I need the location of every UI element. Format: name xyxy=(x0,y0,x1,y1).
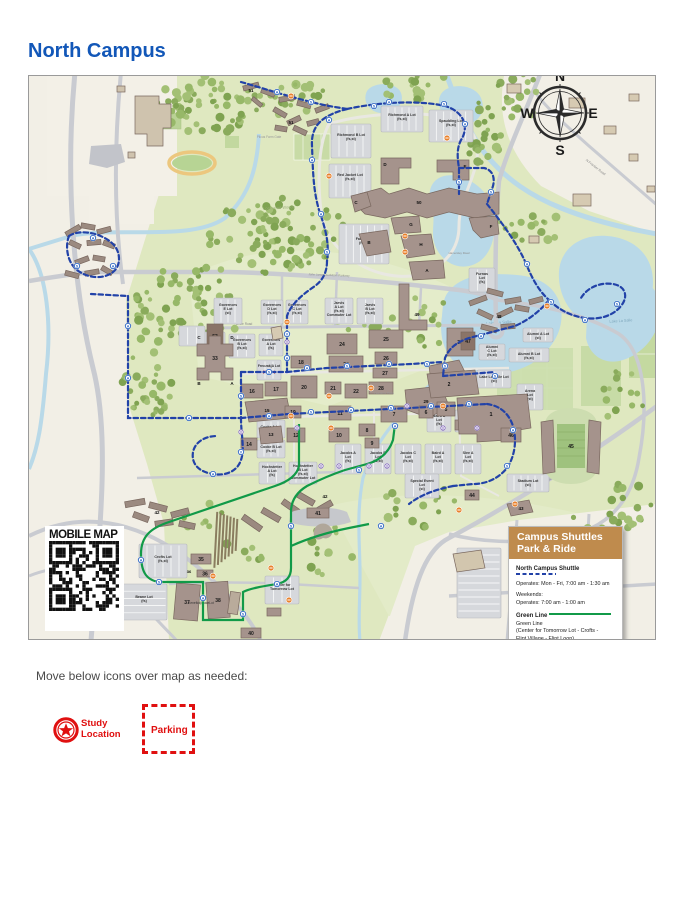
svg-text:42: 42 xyxy=(154,510,160,515)
svg-text:A: A xyxy=(306,367,309,371)
svg-text:A: A xyxy=(480,335,483,339)
svg-text:A: A xyxy=(584,319,587,323)
svg-text:8: 8 xyxy=(366,428,369,434)
svg-text:A: A xyxy=(526,263,529,267)
svg-text:2: 2 xyxy=(448,382,451,388)
svg-text:A: A xyxy=(268,415,271,419)
svg-text:25: 25 xyxy=(383,337,389,343)
svg-text:6: 6 xyxy=(425,410,428,416)
svg-text:A: A xyxy=(92,237,95,241)
svg-text:A: A xyxy=(388,363,391,367)
svg-text:7: 7 xyxy=(393,412,396,418)
svg-text:Hamersley Road: Hamersley Road xyxy=(449,251,470,255)
svg-text:A: A xyxy=(350,409,353,413)
svg-text:10: 10 xyxy=(336,433,342,439)
svg-text:JarvisB Lot(fs,st): JarvisB Lot(fs,st) xyxy=(365,303,376,315)
svg-text:51: 51 xyxy=(288,120,294,125)
svg-text:Frnczak|A Lot: Frnczak|A Lot xyxy=(258,364,281,368)
svg-text:Founders Plaza: Founders Plaza xyxy=(374,391,394,395)
svg-text:A: A xyxy=(512,429,515,433)
svg-text:38: 38 xyxy=(215,598,221,604)
svg-text:27: 27 xyxy=(382,371,388,377)
svg-text:A: A xyxy=(328,119,331,123)
svg-text:A: A xyxy=(112,265,115,269)
svg-text:A: A xyxy=(188,417,191,421)
svg-text:16: 16 xyxy=(249,389,255,395)
svg-text:N: N xyxy=(555,76,565,84)
svg-text:49: 49 xyxy=(414,312,420,317)
svg-text:36: 36 xyxy=(187,569,192,574)
svg-text:17: 17 xyxy=(273,387,279,393)
svg-text:A: A xyxy=(127,325,130,329)
svg-text:46: 46 xyxy=(508,433,514,439)
svg-text:A: A xyxy=(127,377,130,381)
svg-text:A: A xyxy=(388,101,391,105)
svg-text:13: 13 xyxy=(268,432,274,437)
svg-text:41: 41 xyxy=(315,511,321,517)
svg-text:35: 35 xyxy=(198,557,204,563)
svg-text:AlumniC Lot(fs,st): AlumniC Lot(fs,st) xyxy=(486,345,498,357)
svg-text:21: 21 xyxy=(330,386,336,392)
svg-text:A: A xyxy=(320,213,323,217)
svg-text:29: 29 xyxy=(423,399,429,404)
svg-text:E: E xyxy=(588,105,597,121)
svg-text:24: 24 xyxy=(339,342,345,348)
svg-text:48: 48 xyxy=(496,314,502,319)
svg-text:A: A xyxy=(202,597,205,601)
svg-text:43: 43 xyxy=(518,506,524,511)
svg-text:A: A xyxy=(276,583,279,587)
svg-text:A: A xyxy=(394,425,397,429)
svg-text:S: S xyxy=(555,142,564,158)
svg-text:A: A xyxy=(276,91,279,95)
svg-text:Pilcus Farm Gate: Pilcus Farm Gate xyxy=(257,135,282,139)
svg-text:Kenefick|PlaceLot: Kenefick|PlaceLot xyxy=(188,601,214,605)
svg-text:9: 9 xyxy=(371,441,374,447)
svg-text:22: 22 xyxy=(353,389,359,395)
svg-text:H: H xyxy=(419,242,422,247)
svg-text:W: W xyxy=(520,105,534,121)
svg-text:51: 51 xyxy=(248,88,254,93)
svg-text:42: 42 xyxy=(322,494,328,499)
svg-text:G: G xyxy=(409,222,413,227)
svg-text:18: 18 xyxy=(298,360,304,366)
svg-text:50: 50 xyxy=(416,200,422,205)
svg-text:20: 20 xyxy=(301,385,307,391)
svg-text:A: A xyxy=(430,405,433,409)
svg-text:40: 40 xyxy=(248,631,254,637)
svg-text:A: A xyxy=(212,473,215,477)
svg-text:A: A xyxy=(380,525,383,529)
svg-text:A: A xyxy=(464,123,467,127)
svg-text:15: 15 xyxy=(264,408,270,413)
svg-text:14: 14 xyxy=(246,442,252,448)
svg-text:33: 33 xyxy=(212,356,218,362)
svg-text:A: A xyxy=(140,559,143,563)
svg-text:44: 44 xyxy=(469,493,475,499)
svg-text:45: 45 xyxy=(568,444,574,450)
svg-text:F: F xyxy=(490,224,493,229)
svg-text:A: A xyxy=(286,357,289,361)
svg-text:36: 36 xyxy=(202,572,208,578)
svg-text:A: A xyxy=(311,159,314,163)
svg-text:1: 1 xyxy=(489,412,492,418)
